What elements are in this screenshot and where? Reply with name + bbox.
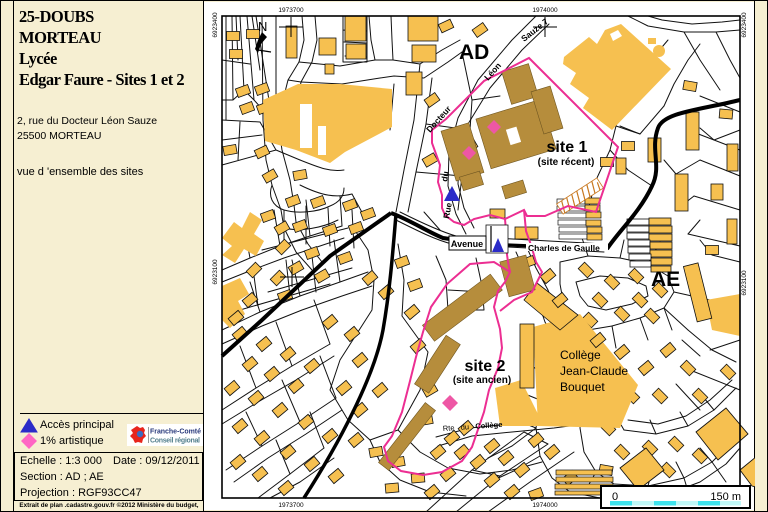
svg-text:1973700: 1973700: [278, 502, 304, 509]
svg-text:Charles de Gaulle: Charles de Gaulle: [528, 243, 600, 253]
svg-text:6923100: 6923100: [212, 259, 219, 285]
svg-text:AE: AE: [651, 268, 680, 291]
svg-text:1973700: 1973700: [278, 7, 304, 14]
svg-text:site 1: site 1: [547, 139, 588, 156]
svg-text:Franche-Comté: Franche-Comté: [150, 429, 201, 436]
svg-text:Conseil régional: Conseil régional: [150, 438, 200, 445]
svg-text:6923400: 6923400: [741, 12, 748, 38]
svg-text:AD: AD: [459, 41, 489, 64]
svg-text:N: N: [258, 19, 267, 34]
svg-text:1974000: 1974000: [532, 7, 558, 14]
svg-text:site 2: site 2: [465, 358, 506, 375]
svg-text:(site ancien): (site ancien): [453, 375, 511, 386]
svg-text:6923400: 6923400: [212, 12, 219, 38]
svg-text:Collège: Collège: [560, 348, 601, 362]
svg-text:Bouquet: Bouquet: [560, 380, 605, 394]
svg-text:du: du: [439, 170, 451, 182]
svg-text:(site récent): (site récent): [538, 157, 595, 168]
svg-text:1974000: 1974000: [532, 502, 558, 509]
svg-text:Jean-Claude: Jean-Claude: [560, 364, 628, 378]
svg-text:6923100: 6923100: [741, 270, 748, 296]
svg-text:Avenue: Avenue: [451, 239, 483, 249]
